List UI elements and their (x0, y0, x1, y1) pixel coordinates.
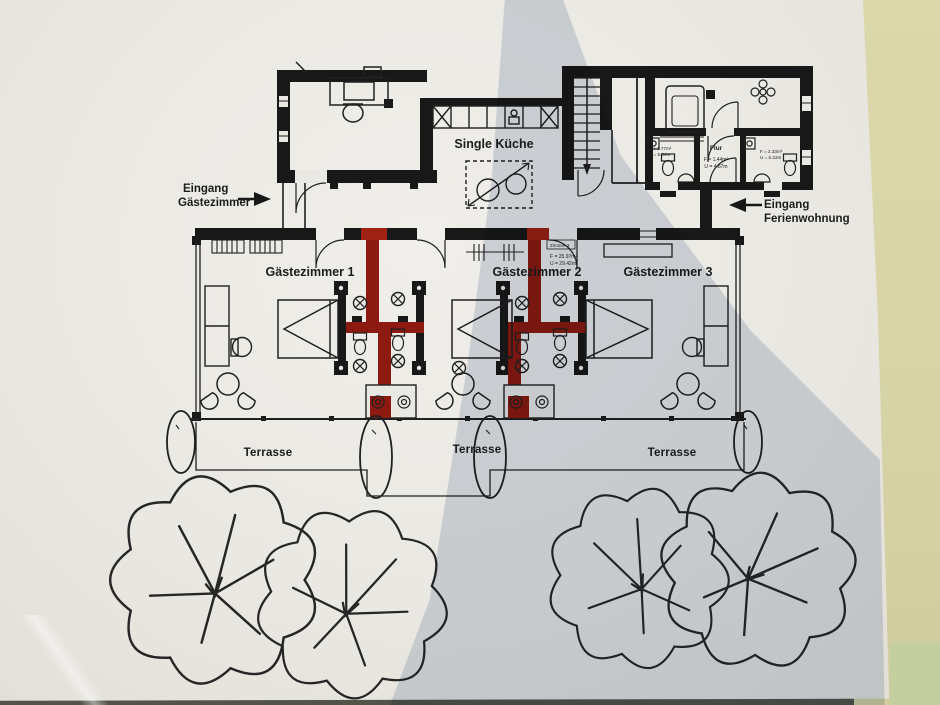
kitchen-label: Single Küche (454, 137, 533, 151)
hall-area: F = 1.44m² (704, 157, 729, 163)
seating-group-room2 (435, 373, 492, 413)
desk-room3 (683, 286, 729, 366)
room2-door-arc (417, 240, 445, 268)
wc-left-area: F = 1.77m² (649, 146, 672, 151)
terrace-label-3: Terrasse (648, 447, 697, 459)
floor-plan-photo: Single Küche Eingang Gästezimmer Eingang… (0, 0, 940, 705)
entrance-guest-line1: Eingang (183, 183, 228, 195)
garden-trees (110, 434, 892, 705)
terrace-outline (196, 422, 744, 496)
stair-direction-arrow (583, 164, 591, 175)
table-corner-patch (890, 643, 940, 705)
room-label-3: Gästezimmer 3 (624, 265, 713, 279)
bed-room1 (278, 300, 338, 358)
entrance-guest-line2: Gästezimmer (178, 197, 251, 209)
wc-right-perimeter: U = 6.22m (760, 155, 781, 160)
desk-room1 (205, 286, 252, 366)
tree-1 (110, 476, 315, 683)
room2-annotation-perimeter: U = 29.42m (550, 261, 576, 267)
bed-room3 (586, 300, 652, 358)
floor-plan-drawing: Single Küche Eingang Gästezimmer Eingang… (0, 0, 940, 705)
sink-icon (754, 174, 770, 182)
wc-left-perimeter: U = 5.34m (649, 152, 670, 157)
room1-door-arc (316, 240, 344, 268)
room-label-2: Gästezimmer 2 (493, 265, 582, 279)
wc-right-label: D-WC (756, 130, 769, 135)
wc-right-area: F = 2.33m² (760, 149, 783, 154)
hall-label: Flur (710, 145, 723, 152)
hall-perimeter: U = 4.87m (704, 164, 727, 170)
toilet-icon (784, 154, 797, 176)
tree-2 (223, 475, 476, 705)
seating-group-room1 (200, 373, 257, 413)
wc-left-label: H-WC (656, 130, 669, 135)
curtain-icon (466, 244, 524, 261)
sink-icon (678, 174, 694, 182)
room2-annotation-tag: Zimmer 3 (550, 243, 570, 248)
radiator-icon (212, 240, 282, 253)
plant-icon (751, 80, 775, 104)
faucet-icon (511, 110, 517, 116)
entrance-apartment-line1: Eingang (764, 199, 809, 211)
room2-annotation-area: F = 25.97m² (550, 254, 577, 260)
room-label-1: Gästezimmer 1 (266, 265, 355, 279)
kitchen-island (466, 161, 532, 208)
corridor-wall (612, 78, 648, 183)
toilet-icon (662, 154, 675, 176)
entrance-apartment-line2: Ferienwohnung (764, 213, 850, 225)
terrace-label-2: Terrasse (453, 444, 502, 456)
entrance-apartment-arrow (729, 198, 762, 212)
apartment-door-arc (712, 102, 738, 128)
stair-door-arc (578, 170, 604, 196)
office-room (283, 62, 388, 228)
sideboard (604, 244, 672, 257)
paper-sheet: Single Küche Eingang Gästezimmer Eingang… (0, 0, 940, 705)
terrace-label-1: Terrasse (244, 447, 293, 459)
kitchen (433, 106, 558, 208)
kitchen-counter (433, 106, 558, 128)
seating-group-room3 (660, 373, 717, 413)
